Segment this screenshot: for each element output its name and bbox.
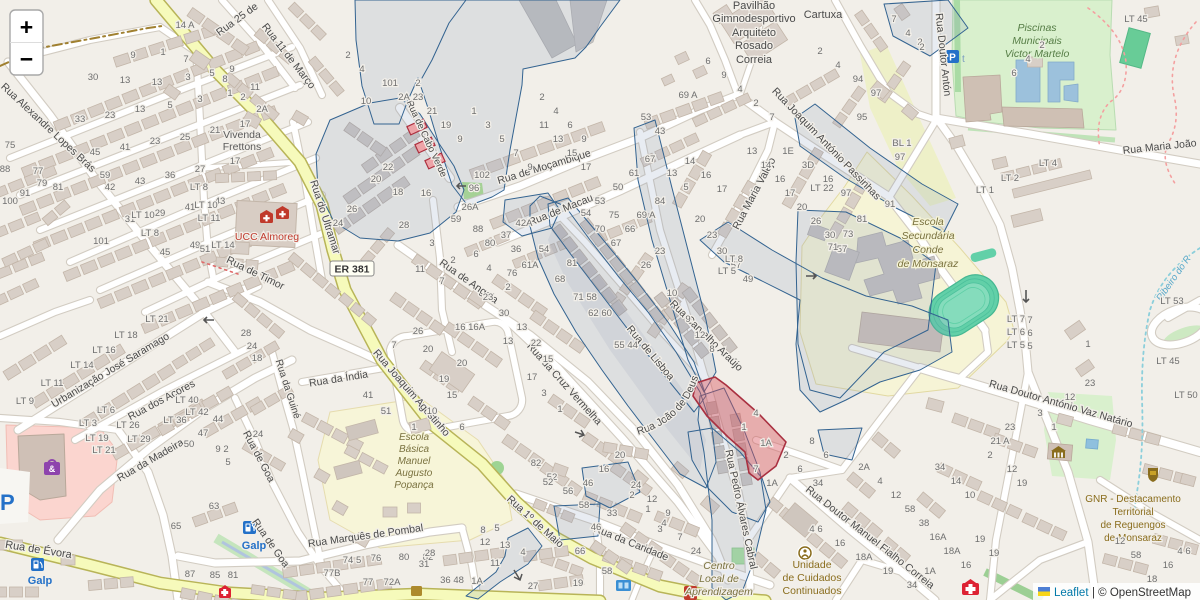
svg-text:23: 23 — [483, 292, 494, 303]
svg-text:LT 19: LT 19 — [85, 433, 108, 444]
svg-text:5: 5 — [167, 100, 172, 111]
svg-text:19: 19 — [883, 566, 894, 577]
svg-text:2A: 2A — [256, 104, 268, 115]
svg-text:36 48: 36 48 — [440, 575, 464, 586]
svg-text:1: 1 — [160, 47, 165, 58]
svg-text:81: 81 — [857, 214, 868, 225]
svg-text:69 A: 69 A — [636, 210, 656, 221]
svg-text:Conde: Conde — [913, 244, 944, 256]
svg-text:GNR - Destacamento: GNR - Destacamento — [1085, 494, 1181, 505]
svg-text:19: 19 — [1017, 478, 1028, 489]
svg-text:69 A: 69 A — [678, 90, 698, 101]
svg-text:91: 91 — [20, 188, 31, 199]
svg-text:8: 8 — [709, 344, 714, 355]
svg-text:LT 8: LT 8 — [725, 254, 743, 265]
svg-text:LT 16: LT 16 — [92, 345, 115, 356]
svg-text:28: 28 — [399, 220, 410, 231]
svg-text:5: 5 — [225, 457, 230, 468]
svg-text:2: 2 — [345, 50, 350, 61]
svg-text:81: 81 — [567, 258, 578, 269]
svg-text:4: 4 — [359, 64, 364, 75]
svg-text:68: 68 — [555, 274, 566, 285]
svg-text:2: 2 — [987, 450, 992, 461]
svg-text:16: 16 — [421, 188, 432, 199]
svg-text:37: 37 — [501, 230, 512, 241]
svg-text:34: 34 — [907, 580, 918, 591]
svg-text:Leaflet: Leaflet — [1054, 587, 1089, 599]
svg-text:Popança: Popança — [394, 480, 434, 491]
svg-text:23: 23 — [105, 110, 116, 121]
svg-text:101: 101 — [382, 78, 398, 89]
svg-text:UCC Almoreg: UCC Almoreg — [235, 231, 299, 243]
svg-text:Centro: Centro — [703, 560, 735, 572]
svg-text:LT 18: LT 18 — [114, 330, 137, 341]
svg-text:2: 2 — [629, 490, 634, 501]
svg-text:2: 2 — [415, 78, 420, 89]
svg-text:LT 5: LT 5 — [1007, 340, 1025, 351]
svg-text:76: 76 — [507, 268, 518, 279]
svg-text:6: 6 — [1027, 328, 1032, 339]
svg-text:100: 100 — [2, 196, 18, 207]
svg-text:58: 58 — [602, 566, 613, 577]
svg-text:7: 7 — [1027, 315, 1032, 326]
svg-text:1A: 1A — [760, 438, 772, 449]
svg-text:80: 80 — [485, 238, 496, 249]
svg-text:51: 51 — [381, 406, 392, 417]
svg-text:13: 13 — [152, 77, 163, 88]
svg-text:LT 7: LT 7 — [1007, 314, 1025, 325]
svg-text:26: 26 — [641, 260, 652, 271]
svg-text:19: 19 — [441, 120, 452, 131]
svg-text:6: 6 — [567, 120, 572, 131]
svg-text:6: 6 — [1011, 68, 1016, 79]
svg-text:LT 29: LT 29 — [127, 434, 150, 445]
svg-text:19: 19 — [439, 374, 450, 385]
svg-text:1: 1 — [557, 404, 562, 415]
svg-text:LT 21: LT 21 — [92, 445, 115, 456]
svg-text:25: 25 — [180, 132, 191, 143]
svg-text:LT 21: LT 21 — [145, 314, 168, 325]
svg-text:84: 84 — [655, 196, 666, 207]
svg-text:10: 10 — [361, 96, 372, 107]
svg-text:2: 2 — [753, 98, 758, 109]
svg-text:18A: 18A — [944, 546, 962, 557]
svg-text:38: 38 — [919, 518, 930, 529]
svg-text:56: 56 — [563, 486, 574, 497]
svg-text:Victor Martelo: Victor Martelo — [1005, 48, 1070, 60]
svg-text:1: 1 — [1085, 339, 1090, 350]
svg-text:13: 13 — [553, 134, 564, 145]
svg-text:Aprendizagem: Aprendizagem — [684, 586, 753, 598]
svg-text:30: 30 — [88, 72, 99, 83]
svg-text:24: 24 — [253, 429, 264, 440]
svg-text:3D: 3D — [802, 160, 814, 171]
svg-text:&: & — [49, 464, 56, 474]
svg-text:de Reguengos: de Reguengos — [1100, 520, 1165, 531]
svg-text:de Monsaraz: de Monsaraz — [898, 258, 959, 270]
svg-text:27: 27 — [195, 164, 206, 175]
svg-text:43: 43 — [135, 176, 146, 187]
svg-text:31: 31 — [419, 559, 430, 570]
svg-text:8: 8 — [480, 525, 485, 536]
svg-text:71: 71 — [828, 242, 839, 253]
svg-text:13: 13 — [135, 104, 146, 115]
svg-text:102: 102 — [474, 170, 490, 181]
svg-text:28: 28 — [425, 548, 436, 559]
svg-text:14: 14 — [951, 476, 962, 487]
svg-text:11: 11 — [490, 558, 500, 569]
svg-text:4: 4 — [877, 476, 882, 487]
svg-text:1: 1 — [741, 422, 746, 433]
svg-text:20: 20 — [797, 202, 808, 213]
svg-text:LT 10: LT 10 — [194, 200, 217, 211]
svg-text:Territorial: Territorial — [1112, 507, 1153, 518]
svg-text:P: P — [0, 490, 15, 515]
svg-text:101: 101 — [93, 236, 109, 247]
svg-text:14: 14 — [761, 160, 772, 171]
svg-text:6: 6 — [705, 56, 710, 67]
svg-text:18A: 18A — [856, 552, 874, 563]
svg-text:20: 20 — [457, 358, 468, 369]
svg-text:10: 10 — [667, 288, 678, 299]
svg-text:ER 381: ER 381 — [334, 264, 369, 276]
svg-text:Rosado: Rosado — [735, 40, 773, 52]
svg-text:LT 6: LT 6 — [97, 405, 115, 416]
svg-text:Gimnodesportivo: Gimnodesportivo — [712, 13, 795, 25]
svg-text:33: 33 — [607, 508, 618, 519]
svg-text:42: 42 — [105, 182, 116, 193]
svg-text:15: 15 — [447, 390, 458, 401]
svg-text:13: 13 — [667, 168, 678, 179]
svg-text:LT 8: LT 8 — [141, 228, 159, 239]
svg-text:7: 7 — [677, 532, 682, 543]
svg-text:13: 13 — [747, 146, 758, 157]
svg-text:45: 45 — [90, 147, 101, 158]
svg-text:96: 96 — [469, 183, 480, 194]
svg-text:97: 97 — [895, 152, 906, 163]
svg-text:4: 4 — [661, 518, 666, 529]
svg-text:10: 10 — [427, 406, 438, 417]
svg-text:77: 77 — [33, 166, 44, 177]
svg-text:LT 11: LT 11 — [198, 213, 221, 224]
svg-text:2A: 2A — [398, 92, 410, 103]
svg-text:36: 36 — [165, 170, 176, 181]
svg-text:28: 28 — [241, 328, 252, 339]
svg-text:19: 19 — [975, 534, 986, 545]
svg-text:65: 65 — [171, 521, 182, 532]
svg-text:7: 7 — [769, 112, 774, 123]
svg-text:4: 4 — [737, 84, 742, 95]
svg-text:20: 20 — [423, 344, 434, 355]
svg-text:5: 5 — [1027, 341, 1032, 352]
svg-text:76: 76 — [371, 553, 382, 564]
svg-text:54: 54 — [539, 244, 550, 255]
svg-text:Municipais: Municipais — [1012, 35, 1062, 47]
svg-text:88: 88 — [0, 164, 10, 175]
svg-text:LT 50: LT 50 — [1174, 390, 1197, 401]
svg-text:30: 30 — [499, 308, 510, 319]
svg-text:16: 16 — [775, 174, 786, 185]
svg-text:18: 18 — [252, 353, 263, 364]
svg-text:58: 58 — [1131, 550, 1142, 561]
svg-text:LT 26: LT 26 — [116, 420, 139, 431]
svg-text:20: 20 — [615, 450, 626, 461]
svg-text:7: 7 — [439, 276, 444, 287]
svg-text:3: 3 — [1037, 408, 1042, 419]
svg-text:9: 9 — [685, 314, 690, 325]
svg-text:4: 4 — [520, 547, 525, 558]
svg-text:15: 15 — [543, 354, 554, 365]
svg-text:LT 45: LT 45 — [1124, 14, 1147, 25]
svg-text:53: 53 — [641, 112, 652, 123]
svg-text:17: 17 — [240, 119, 251, 130]
svg-text:12: 12 — [695, 330, 706, 341]
svg-text:97: 97 — [841, 188, 852, 199]
svg-text:LT 5: LT 5 — [718, 266, 736, 277]
svg-text:67: 67 — [611, 238, 622, 249]
svg-text:1: 1 — [411, 422, 416, 433]
svg-text:62 60: 62 60 — [588, 308, 612, 319]
svg-text:Continuados: Continuados — [783, 585, 842, 597]
svg-text:8: 8 — [809, 436, 814, 447]
svg-text:34: 34 — [935, 462, 946, 473]
svg-text:13: 13 — [500, 540, 511, 551]
svg-text:BL 1: BL 1 — [892, 138, 911, 149]
svg-text:Vivenda: Vivenda — [223, 129, 261, 141]
svg-text:4: 4 — [486, 263, 491, 274]
svg-text:20: 20 — [371, 174, 382, 185]
svg-text:4: 4 — [905, 28, 910, 39]
svg-text:9: 9 — [527, 162, 532, 173]
svg-text:61A: 61A — [522, 260, 540, 271]
svg-text:16: 16 — [961, 560, 972, 571]
svg-text:88: 88 — [473, 224, 484, 235]
svg-text:LT 53: LT 53 — [1160, 296, 1183, 307]
svg-text:2A: 2A — [858, 462, 870, 473]
svg-text:17: 17 — [785, 188, 796, 199]
svg-text:Unidade: Unidade — [792, 559, 831, 571]
svg-text:12: 12 — [1115, 536, 1126, 547]
svg-text:53: 53 — [595, 196, 606, 207]
svg-text:29: 29 — [155, 208, 166, 219]
svg-text:LT 45: LT 45 — [1156, 356, 1179, 367]
svg-text:22: 22 — [383, 162, 394, 173]
svg-text:73: 73 — [843, 229, 854, 240]
svg-text:45: 45 — [160, 247, 171, 258]
svg-text:1A: 1A — [766, 478, 778, 489]
svg-text:Frettons: Frettons — [223, 141, 262, 153]
svg-text:50: 50 — [613, 182, 624, 193]
svg-text:2: 2 — [539, 92, 544, 103]
svg-text:34: 34 — [813, 478, 824, 489]
svg-text:LT 40: LT 40 — [175, 395, 198, 406]
svg-text:4: 4 — [553, 106, 558, 117]
svg-text:47: 47 — [198, 428, 209, 439]
svg-text:21 A: 21 A — [990, 436, 1010, 447]
svg-text:75: 75 — [5, 140, 16, 151]
svg-text:1: 1 — [227, 88, 232, 99]
svg-text:7: 7 — [753, 464, 758, 475]
svg-text:41: 41 — [363, 390, 374, 401]
svg-text:20: 20 — [695, 214, 706, 225]
svg-text:5: 5 — [494, 523, 499, 534]
svg-text:72A: 72A — [384, 577, 402, 588]
svg-text:Arquiteto: Arquiteto — [732, 27, 776, 39]
svg-text:16: 16 — [1163, 560, 1174, 571]
svg-text:1A: 1A — [471, 576, 483, 587]
svg-text:66: 66 — [625, 224, 636, 235]
svg-text:24: 24 — [691, 546, 702, 557]
svg-text:63: 63 — [209, 501, 220, 512]
svg-text:12: 12 — [1065, 392, 1076, 403]
svg-text:4: 4 — [835, 60, 840, 71]
svg-text:51: 51 — [200, 244, 211, 255]
svg-text:33: 33 — [75, 114, 86, 125]
svg-text:9: 9 — [721, 70, 726, 81]
svg-text:23: 23 — [150, 136, 161, 147]
svg-text:5: 5 — [499, 134, 504, 145]
svg-text:22: 22 — [531, 338, 542, 349]
svg-text:1E: 1E — [782, 146, 794, 157]
svg-text:2: 2 — [450, 255, 455, 266]
svg-text:1: 1 — [471, 106, 476, 117]
svg-text:9 2: 9 2 — [215, 444, 228, 455]
svg-text:16A: 16A — [930, 532, 948, 543]
svg-text:67: 67 — [645, 154, 656, 165]
svg-text:9: 9 — [581, 134, 586, 145]
svg-text:LT 9: LT 9 — [16, 396, 34, 407]
svg-text:36: 36 — [511, 244, 522, 255]
svg-text:1A: 1A — [924, 566, 936, 577]
svg-text:30: 30 — [825, 230, 836, 241]
svg-text:3: 3 — [185, 72, 190, 83]
svg-text:6: 6 — [459, 422, 464, 433]
svg-text:44: 44 — [213, 414, 224, 425]
svg-text:−: − — [20, 46, 33, 72]
svg-text:41: 41 — [120, 142, 131, 153]
svg-text:LT 11: LT 11 — [41, 378, 64, 389]
svg-text:LT 8: LT 8 — [190, 182, 208, 193]
svg-text:Cartuxa: Cartuxa — [804, 9, 843, 21]
svg-text:46: 46 — [583, 478, 594, 489]
svg-text:58: 58 — [905, 504, 916, 515]
svg-text:de Monsaraz: de Monsaraz — [1104, 533, 1162, 544]
svg-text:7: 7 — [183, 54, 188, 65]
svg-text:26: 26 — [811, 216, 822, 227]
svg-text:Augusto: Augusto — [395, 468, 433, 479]
svg-text:17: 17 — [717, 184, 728, 195]
svg-text:50: 50 — [184, 439, 195, 450]
svg-text:18: 18 — [393, 187, 404, 198]
svg-text:49: 49 — [190, 240, 201, 251]
svg-text:Pavilhão: Pavilhão — [733, 0, 775, 12]
svg-text:17: 17 — [230, 156, 241, 167]
svg-text:27: 27 — [528, 581, 539, 592]
svg-text:t: t — [962, 54, 965, 65]
svg-text:Manuel: Manuel — [398, 456, 432, 467]
svg-text:LT 6: LT 6 — [1007, 327, 1025, 338]
svg-text:2: 2 — [505, 282, 510, 293]
svg-text:Básica: Básica — [399, 444, 429, 455]
svg-text:14: 14 — [685, 156, 696, 167]
svg-text:16 16A: 16 16A — [455, 322, 486, 333]
svg-text:4 6: 4 6 — [1177, 546, 1190, 557]
svg-text:12: 12 — [480, 537, 491, 548]
svg-text:70: 70 — [595, 224, 606, 235]
svg-text:13: 13 — [120, 75, 131, 86]
svg-text:23: 23 — [1085, 378, 1096, 389]
svg-text:81: 81 — [228, 570, 239, 581]
svg-text:19: 19 — [573, 578, 584, 589]
svg-text:57: 57 — [837, 244, 848, 255]
svg-text:Local de: Local de — [699, 573, 739, 585]
svg-text:3: 3 — [429, 238, 434, 249]
svg-text:LT 14: LT 14 — [211, 240, 234, 251]
svg-text:2: 2 — [817, 46, 822, 57]
svg-text:LT 3: LT 3 — [79, 418, 97, 429]
svg-text:4: 4 — [753, 408, 758, 419]
svg-text:LT 22: LT 22 — [810, 183, 833, 194]
svg-text:94: 94 — [853, 74, 864, 85]
svg-text:de Cuidados: de Cuidados — [783, 572, 842, 584]
svg-text:8: 8 — [222, 74, 227, 85]
svg-text:87: 87 — [185, 569, 196, 580]
svg-text:6: 6 — [823, 450, 828, 461]
svg-text:58: 58 — [579, 500, 590, 511]
svg-text:26: 26 — [347, 204, 358, 215]
svg-text:16: 16 — [599, 464, 610, 475]
svg-text:17: 17 — [581, 162, 592, 173]
svg-text:2: 2 — [240, 92, 245, 103]
svg-text:85: 85 — [210, 570, 221, 581]
svg-text:| © OpenStreetMap: | © OpenStreetMap — [1092, 587, 1191, 599]
svg-text:97: 97 — [871, 88, 882, 99]
svg-text:82: 82 — [531, 458, 542, 469]
svg-text:23: 23 — [707, 230, 718, 241]
svg-text:1: 1 — [1051, 422, 1056, 433]
svg-text:23: 23 — [1005, 422, 1016, 433]
svg-text:11: 11 — [250, 82, 260, 93]
svg-text:42A: 42A — [516, 218, 534, 229]
svg-text:23: 23 — [655, 246, 666, 257]
svg-text:2: 2 — [1039, 40, 1044, 51]
svg-text:11: 11 — [415, 264, 425, 275]
svg-text:16: 16 — [835, 538, 846, 549]
svg-text:5: 5 — [209, 68, 214, 79]
svg-text:54: 54 — [581, 208, 592, 219]
svg-text:14 A: 14 A — [175, 20, 195, 31]
svg-text:13: 13 — [503, 336, 514, 347]
svg-text:81: 81 — [53, 182, 64, 193]
svg-text:24: 24 — [247, 341, 258, 352]
svg-text:12: 12 — [891, 490, 902, 501]
svg-text:21: 21 — [210, 125, 221, 136]
svg-text:71 58: 71 58 — [573, 292, 597, 303]
svg-text:1: 1 — [645, 504, 650, 515]
svg-text:17: 17 — [527, 372, 538, 383]
svg-text:Secundária: Secundária — [901, 230, 954, 242]
svg-text:15: 15 — [567, 148, 578, 159]
svg-text:49: 49 — [743, 274, 754, 285]
svg-text:6: 6 — [797, 464, 802, 475]
svg-text:43: 43 — [655, 126, 666, 137]
svg-text:Piscinas: Piscinas — [1017, 22, 1057, 34]
svg-text:LT 1: LT 1 — [976, 185, 994, 196]
svg-text:12: 12 — [1007, 464, 1018, 475]
svg-text:7: 7 — [391, 340, 396, 351]
svg-text:Galp: Galp — [28, 575, 53, 587]
svg-text:61: 61 — [629, 168, 640, 179]
